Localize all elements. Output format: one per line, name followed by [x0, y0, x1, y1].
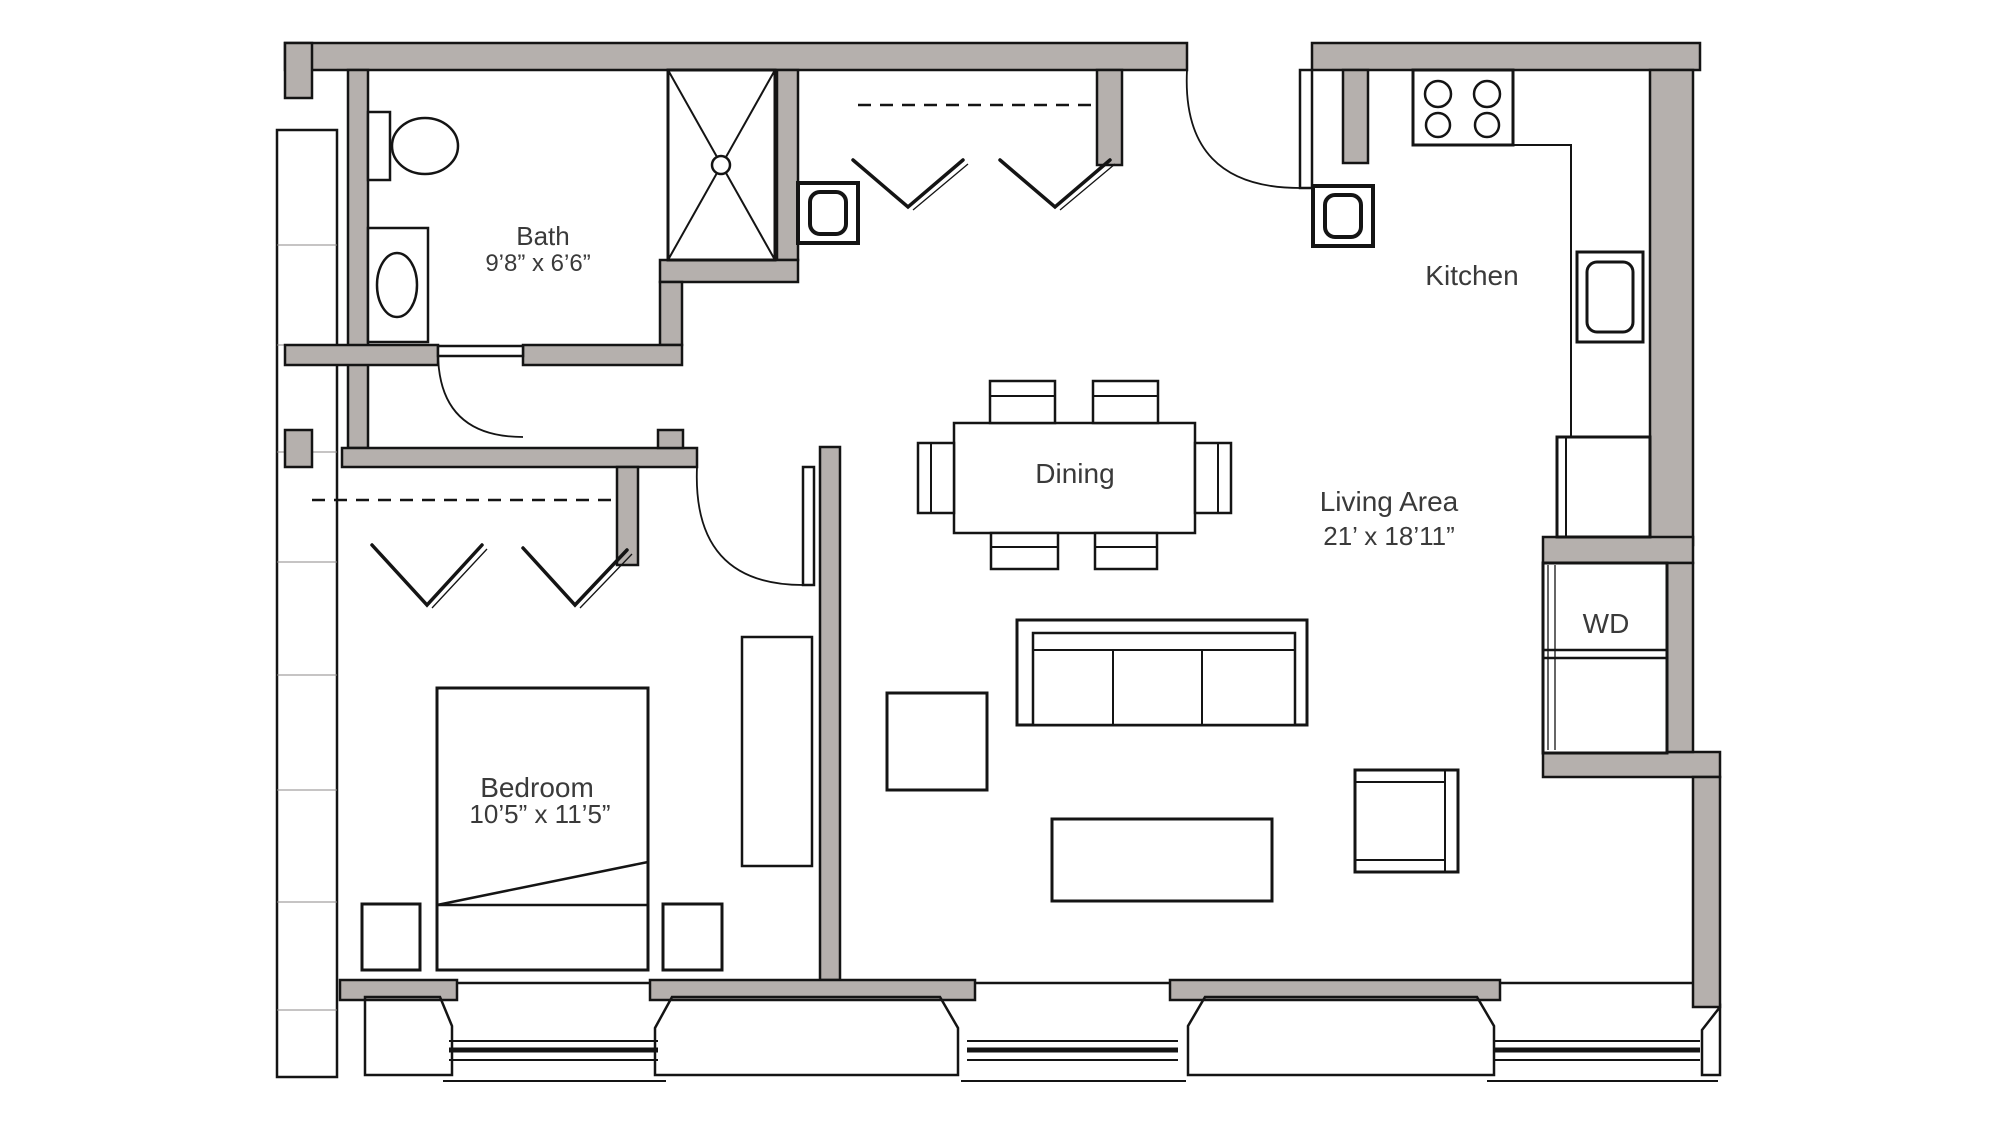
dining-chair — [990, 381, 1055, 423]
wall-segment — [523, 345, 682, 365]
dining-chair — [1195, 443, 1231, 513]
bedroom-door — [697, 467, 814, 585]
hatched-shaft — [277, 130, 337, 1077]
wall-segment — [1693, 777, 1720, 1007]
vanity-sink — [377, 253, 417, 317]
wall-segment — [285, 430, 312, 467]
floor-plan: Bath 9’8” x 6’6” Kitchen Dining Living A… — [0, 0, 2000, 1126]
wall-segment — [777, 70, 798, 260]
dining-label: Dining — [1035, 458, 1114, 489]
bedroom-dimensions: 10’5” x 11’5” — [469, 799, 610, 829]
wall-segment — [285, 345, 438, 365]
dining-chair — [1095, 533, 1157, 569]
hanger-icon — [523, 548, 627, 605]
column-right — [1313, 186, 1373, 246]
dining-chair — [1093, 381, 1158, 423]
wall-segment — [1543, 537, 1693, 563]
refrigerator — [1557, 437, 1650, 537]
wall-segment — [1097, 70, 1122, 165]
balcony-pier — [365, 997, 452, 1075]
nightstand — [663, 904, 722, 970]
balcony-piers — [365, 997, 1720, 1075]
wall-segment — [820, 447, 840, 980]
living-area-label: Living Area — [1320, 486, 1459, 517]
shower — [668, 70, 775, 260]
side-table — [887, 693, 987, 790]
living-window-left — [961, 983, 1186, 1081]
wall-segment — [1312, 43, 1700, 70]
wall-segment — [1343, 70, 1368, 163]
door-leaf — [438, 346, 523, 356]
wall-segment — [660, 260, 798, 282]
door-swing-arc — [1187, 70, 1300, 188]
balcony-pier — [655, 997, 958, 1075]
entry-closet — [853, 105, 1115, 210]
burner-icon — [1426, 113, 1450, 137]
door-swing-arc — [697, 467, 803, 585]
entry-door — [1187, 70, 1312, 188]
kitchen-label: Kitchen — [1425, 260, 1518, 291]
washer-dryer-label: WD — [1583, 608, 1630, 639]
door-leaf — [1300, 70, 1312, 188]
stove — [1413, 70, 1513, 145]
sofa — [1017, 620, 1307, 725]
burner-icon — [1474, 81, 1500, 107]
balcony-pier — [1702, 1007, 1720, 1075]
bedroom-window — [443, 983, 666, 1081]
wall-segment — [1650, 70, 1693, 545]
armchair — [1355, 770, 1458, 872]
bathroom-door — [438, 346, 523, 437]
washer-dryer-closet — [1543, 563, 1667, 753]
wall-segment — [285, 43, 1187, 70]
kitchen-counter — [1513, 145, 1571, 437]
wall-segment — [660, 282, 682, 345]
kitchen-sink — [1577, 252, 1643, 342]
exterior-shaft — [277, 130, 337, 1077]
living-window-right — [1487, 983, 1718, 1081]
burner-icon — [1425, 81, 1451, 107]
toilet — [368, 112, 458, 180]
wall-segment — [342, 448, 697, 467]
bath-label: Bath — [516, 221, 570, 251]
dresser — [742, 637, 812, 866]
coffee-table — [1052, 819, 1272, 901]
door-swing-arc — [438, 352, 523, 437]
shower-drain-icon — [712, 156, 730, 174]
bath-dimensions: 9’8” x 6’6” — [485, 250, 590, 277]
bathroom-vanity — [368, 228, 428, 342]
hanger-icon — [853, 160, 963, 207]
wall-segment — [658, 430, 683, 448]
burner-icon — [1475, 113, 1499, 137]
nightstand — [362, 904, 420, 970]
column-left — [798, 183, 858, 243]
door-leaf — [803, 467, 814, 585]
dining-chair — [991, 533, 1058, 569]
wall-segment — [348, 70, 368, 448]
living-area-dimensions: 21’ x 18’11” — [1323, 521, 1455, 551]
floor-plan-drawing: Bath 9’8” x 6’6” Kitchen Dining Living A… — [0, 0, 2000, 1126]
wall-segment — [1543, 752, 1720, 777]
balcony-pier — [1188, 997, 1494, 1075]
hanger-icon — [1000, 160, 1110, 207]
dining-chair — [918, 443, 954, 513]
wall-segment — [285, 43, 312, 98]
wall-segment — [1667, 563, 1693, 752]
hanger-icon — [372, 545, 482, 605]
bedroom-closet — [312, 500, 632, 608]
bed — [437, 688, 648, 970]
